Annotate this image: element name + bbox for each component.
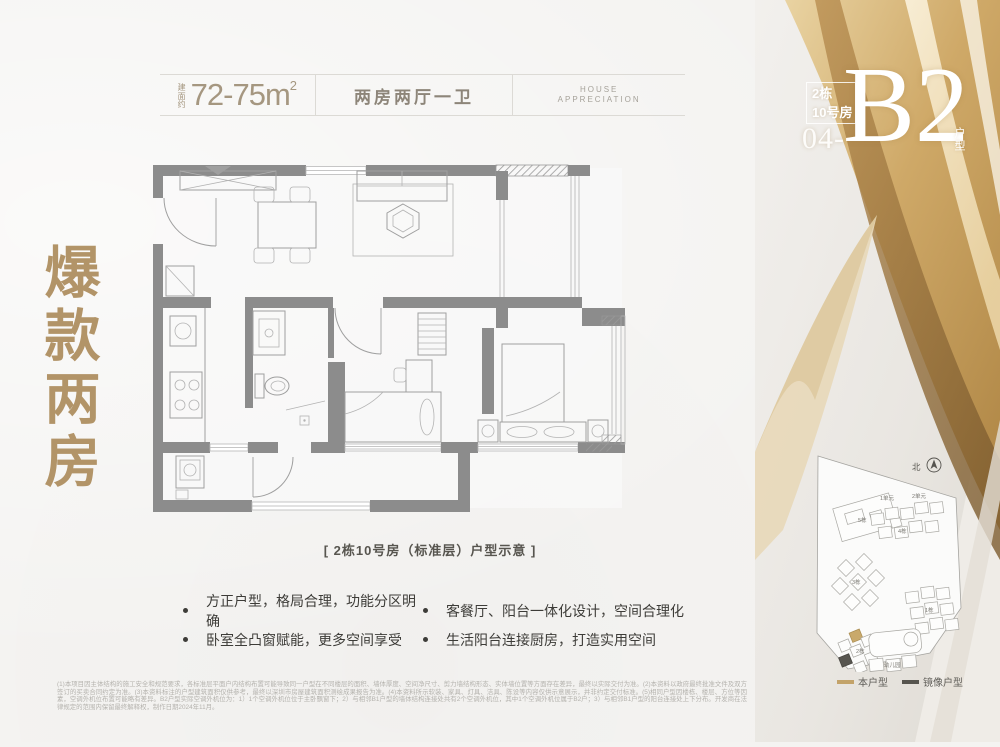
area-prefix: 建面约 [178,84,187,110]
area-value: 72-75m [191,77,290,113]
unit-1-label: 1单元 [880,494,895,502]
building-3-label: 3栋 [852,578,861,586]
unit-2-label: 2单元 [912,492,927,500]
bullet-icon [423,637,428,642]
bullet-icon [183,637,188,642]
compass-north-label: 北 [912,462,921,472]
unit-type-label: 户型 [951,127,967,153]
legal-disclaimer: (1)本项目因主体结构的施工安全和规范要求，各标准层平面户内结构布置可能导致同一… [57,681,747,711]
area-superscript: 2 [290,78,297,93]
mirror-unit-swatch-icon [902,680,919,684]
building-4-label: 4栋 [898,527,907,535]
highlight-item: 客餐厅、阳台一体化设计，空间合理化 [423,596,773,625]
floor-plan-caption: [ 2栋10号房（标准层）户型示意 ] [160,540,700,559]
site-plan-legend: 本户型 镜像户型 [837,674,977,689]
kindergarten-label: 幼儿园 [884,661,901,669]
compass-icon [927,458,941,472]
highlight-text: 客餐厅、阳台一体化设计，空间合理化 [446,601,684,621]
spec-area: 建面约 72-75m 2 [160,75,315,115]
highlight-text: 生活阳台连接厨房，打造实用空间 [446,630,656,650]
campaign-title: 爆款两房 [40,243,96,495]
highlight-text: 卧室全凸窗赋能，更多空间享受 [206,630,402,650]
tagline-line2: APPRECIATION [558,95,641,105]
this-unit-swatch-icon [837,680,854,684]
spec-tagline: HOUSE APPRECIATION [513,75,685,115]
highlight-item: 方正户型，格局合理，功能分区明确 [183,596,423,625]
building-5-label: 5栋 [858,516,867,524]
site-plan: .b{fill:#fdfdfc;stroke:#a9a8a3;stroke-wi… [808,440,993,677]
legend-label: 镜像户型 [923,674,963,689]
legend-item-mirror-unit: 镜像户型 [902,674,963,689]
layout-text: 两房两厅一卫 [354,83,474,108]
bullet-icon [183,608,188,613]
floor-plan: .w{fill:#8c8c8c;} .f{fill:none;stroke:#9… [150,158,642,541]
bullet-icon [423,608,428,613]
spec-layout: 两房两厅一卫 [315,75,514,115]
spec-header: 建面约 72-75m 2 两房两厅一卫 HOUSE APPRECIATION [160,74,685,116]
building-2-label: 2栋 [856,647,865,655]
tagline-line1: HOUSE [580,85,618,95]
legend-item-this-unit: 本户型 [837,674,888,689]
legend-label: 本户型 [858,674,888,689]
highlight-item: 卧室全凸窗赋能，更多空间享受 [183,625,423,654]
highlight-item: 生活阳台连接厨房，打造实用空间 [423,625,773,654]
building-1-label: 1栋 [925,606,934,614]
highlight-list: 方正户型，格局合理，功能分区明确 客餐厅、阳台一体化设计，空间合理化 卧室全凸窗… [183,596,773,654]
